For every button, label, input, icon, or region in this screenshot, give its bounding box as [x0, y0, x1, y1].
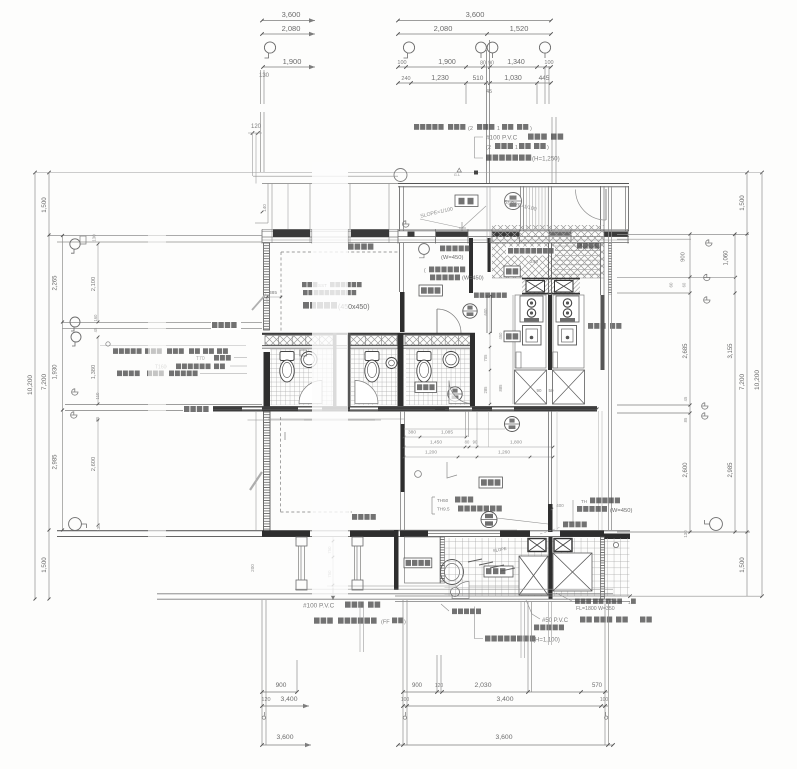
svg-text:1,030: 1,030	[504, 75, 522, 82]
svg-text:(2: (2	[486, 145, 491, 151]
svg-text:1,500: 1,500	[739, 195, 746, 211]
svg-text:TH: TH	[581, 499, 587, 504]
svg-text:80: 80	[480, 61, 486, 67]
svg-text:2,100: 2,100	[91, 277, 97, 292]
svg-text:85: 85	[95, 416, 100, 421]
svg-text:(W=450): (W=450)	[610, 508, 632, 514]
svg-text:60: 60	[682, 282, 687, 287]
svg-text:TH9.5: TH9.5	[437, 507, 450, 512]
svg-text:1: 1	[628, 600, 631, 605]
svg-text:3,600: 3,600	[276, 734, 293, 741]
svg-text:(2: (2	[468, 126, 473, 132]
svg-text:#100 P.V.C: #100 P.V.C	[303, 603, 335, 610]
svg-text:2,685: 2,685	[683, 343, 689, 359]
svg-text:45: 45	[93, 327, 98, 332]
svg-text:): )	[404, 620, 406, 626]
svg-text:G.L: G.L	[454, 172, 461, 177]
svg-text:130: 130	[96, 524, 101, 532]
svg-text:1,450: 1,450	[430, 440, 442, 446]
svg-text:1: 1	[497, 126, 500, 132]
svg-text:130: 130	[92, 234, 97, 242]
svg-text:2,600: 2,600	[91, 457, 97, 472]
svg-text:2,600: 2,600	[683, 462, 689, 478]
svg-text:90: 90	[488, 61, 494, 67]
svg-text:200: 200	[250, 564, 255, 572]
svg-text:445: 445	[539, 75, 550, 82]
svg-text:100: 100	[397, 60, 406, 66]
svg-text:1,380: 1,380	[91, 365, 97, 380]
svg-text:1,500: 1,500	[41, 197, 48, 213]
svg-text:900: 900	[412, 683, 423, 689]
svg-text:2,985: 2,985	[728, 462, 734, 478]
svg-text:1,060: 1,060	[724, 250, 730, 266]
svg-text:TH50: TH50	[437, 498, 449, 503]
svg-text:85: 85	[683, 417, 688, 422]
svg-text:1,085: 1,085	[441, 430, 453, 436]
svg-text:600: 600	[483, 308, 488, 316]
svg-text:100: 100	[544, 60, 553, 66]
svg-text:7,200: 7,200	[41, 373, 48, 390]
svg-text:(W=450): (W=450)	[441, 255, 463, 261]
svg-text:1,500: 1,500	[739, 557, 746, 573]
svg-text:(FF: (FF	[381, 620, 390, 626]
svg-text:80: 80	[465, 440, 470, 445]
svg-text:#100 P.V.C: #100 P.V.C	[486, 135, 518, 142]
svg-text:450: 450	[498, 332, 503, 340]
svg-text:510: 510	[473, 75, 484, 82]
svg-text:3,600: 3,600	[282, 10, 301, 19]
svg-text:1,200: 1,200	[425, 450, 437, 456]
svg-text:50: 50	[549, 388, 554, 393]
svg-text:885: 885	[498, 384, 503, 392]
svg-text:3,400: 3,400	[496, 696, 513, 703]
svg-text:#50 P.V.C: #50 P.V.C	[542, 618, 569, 624]
svg-text:130: 130	[683, 530, 688, 538]
svg-text:240: 240	[530, 259, 538, 265]
svg-text:60: 60	[669, 282, 674, 287]
svg-text:3,600: 3,600	[495, 734, 512, 741]
svg-text:90: 90	[537, 388, 542, 393]
svg-text:45: 45	[683, 396, 688, 401]
svg-text:1,260: 1,260	[498, 450, 510, 456]
svg-text:1,520: 1,520	[510, 24, 529, 33]
svg-text:1,800: 1,800	[510, 440, 522, 446]
svg-text:570: 570	[592, 683, 603, 689]
svg-text:385: 385	[269, 290, 277, 296]
svg-text:1,230: 1,230	[431, 75, 449, 82]
svg-text:2,265: 2,265	[53, 275, 59, 291]
svg-text:3,400: 3,400	[280, 696, 297, 703]
svg-text:2,080: 2,080	[282, 24, 301, 33]
svg-text:400: 400	[556, 503, 564, 508]
svg-text:110: 110	[95, 392, 100, 400]
svg-text:3,155: 3,155	[728, 343, 734, 359]
svg-text:1,500: 1,500	[41, 557, 48, 573]
svg-text:120: 120	[435, 683, 444, 689]
svg-text:100: 100	[600, 697, 609, 703]
svg-text:1,900: 1,900	[283, 57, 302, 66]
svg-text:900: 900	[681, 252, 687, 262]
svg-text:(W=450): (W=450)	[462, 276, 484, 282]
svg-text:(H=1,250): (H=1,250)	[532, 156, 560, 163]
svg-text:10,200: 10,200	[754, 370, 761, 390]
svg-text:FL=1800 W=350: FL=1800 W=350	[576, 606, 615, 612]
svg-text:2,080: 2,080	[434, 24, 453, 33]
svg-text:10,200: 10,200	[27, 375, 34, 395]
svg-text:100: 100	[401, 697, 410, 703]
svg-text:705: 705	[483, 354, 488, 362]
svg-text:T70: T70	[196, 356, 205, 362]
svg-text:285: 285	[483, 386, 488, 394]
svg-text:1: 1	[515, 145, 518, 151]
svg-text:1,930: 1,930	[53, 364, 59, 380]
svg-text:2,985: 2,985	[53, 454, 59, 470]
svg-text:1,340: 1,340	[507, 59, 525, 66]
svg-text:): )	[530, 126, 532, 132]
svg-text:1,900: 1,900	[438, 59, 456, 66]
svg-text:900: 900	[276, 682, 287, 689]
svg-text:3,600: 3,600	[466, 10, 485, 19]
svg-text:120: 120	[251, 124, 262, 130]
svg-text:2,030: 2,030	[474, 682, 491, 689]
svg-text:): )	[547, 145, 549, 151]
svg-text:160: 160	[93, 314, 98, 322]
svg-text:240: 240	[401, 76, 410, 82]
svg-text:120: 120	[261, 697, 270, 703]
svg-text:7,200: 7,200	[739, 373, 746, 390]
svg-text:(H=1,100): (H=1,100)	[533, 638, 560, 644]
svg-text:380: 380	[408, 430, 416, 436]
